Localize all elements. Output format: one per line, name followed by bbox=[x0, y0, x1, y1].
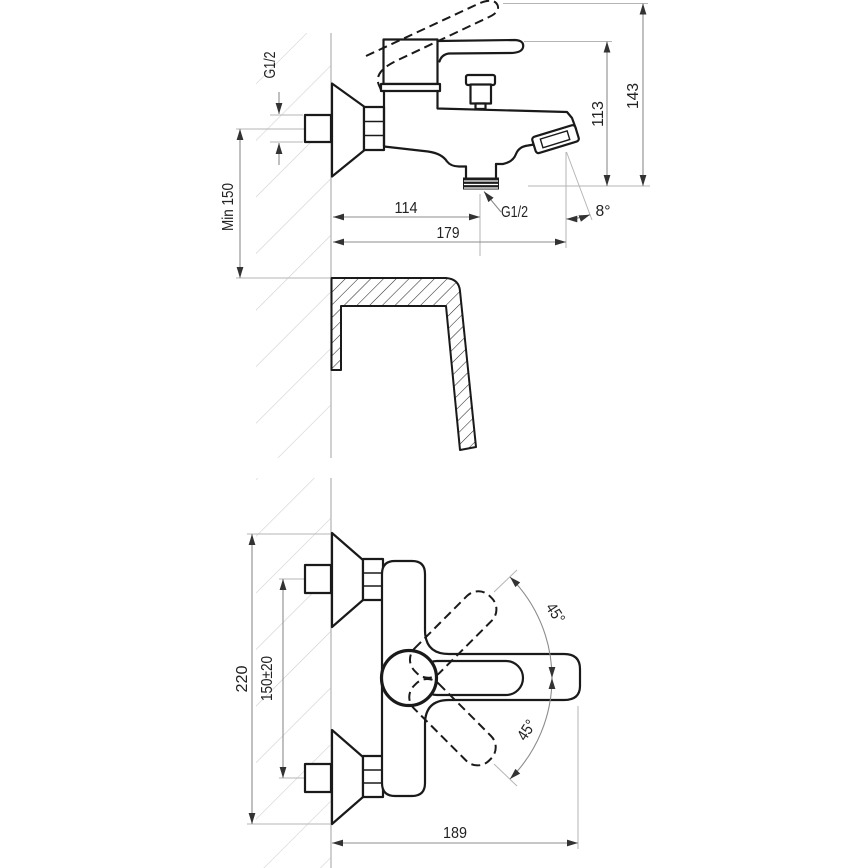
label-spout-height: 113 bbox=[590, 101, 607, 127]
supply-pipe-bottom bbox=[305, 764, 331, 792]
dimension-143: 143 bbox=[625, 4, 643, 187]
aerator bbox=[532, 124, 580, 153]
label-flange-span: 220 bbox=[234, 665, 251, 692]
diverter-knob bbox=[466, 75, 495, 109]
dimension-outlet-thread: G1/2 bbox=[484, 192, 528, 222]
handle-closed bbox=[381, 40, 523, 92]
hex-nut-side bbox=[364, 107, 384, 150]
handle-lever bbox=[438, 40, 523, 62]
label-wall-to-spout-end: 179 bbox=[437, 225, 460, 242]
mounting-escutcheon-lower bbox=[332, 730, 363, 824]
label-inlet-spacing: 150±20 bbox=[259, 656, 276, 701]
supply-pipe-side bbox=[305, 115, 331, 142]
mounting-escutcheon-side bbox=[332, 84, 364, 177]
wall-hatching-top bbox=[256, 33, 331, 458]
bathtub-rim-section bbox=[332, 278, 477, 450]
label-overall-height: 143 bbox=[625, 83, 642, 109]
handle-base-plate bbox=[381, 84, 440, 91]
dimension-189: 189 bbox=[332, 825, 578, 843]
label-min-mount-height: Min 150 bbox=[220, 183, 237, 231]
front-view: 220 150±20 189 45° 45° bbox=[234, 478, 580, 868]
dimension-114: 114 bbox=[333, 200, 480, 217]
label-overall-width: 189 bbox=[443, 825, 467, 842]
hex-nut-upper bbox=[363, 559, 383, 600]
body-underside-left bbox=[384, 91, 466, 167]
mounting-escutcheon-upper bbox=[332, 533, 363, 627]
dimension-min-150: Min 150 bbox=[220, 129, 240, 278]
faucet-dimensional-drawing: G1/2 Min 150 114 179 G1/2 8° 113 143 bbox=[0, 0, 868, 868]
faucet-body-side bbox=[384, 75, 580, 190]
label-inlet-thread: G1/2 bbox=[262, 51, 279, 78]
label-outlet-thread: G1/2 bbox=[501, 204, 528, 221]
shower-outlet-cylinder bbox=[466, 164, 496, 178]
side-view: G1/2 Min 150 114 179 G1/2 8° 113 143 bbox=[220, 1, 650, 458]
label-swing-lower: 45° bbox=[514, 717, 540, 744]
dimension-179: 179 bbox=[333, 225, 566, 242]
label-swing-upper: 45° bbox=[542, 600, 568, 627]
dimension-220: 220 bbox=[234, 534, 252, 824]
technical-drawing-page: G1/2 Min 150 114 179 G1/2 8° 113 143 bbox=[0, 0, 868, 868]
supply-pipe-top bbox=[305, 565, 331, 593]
label-spout-angle: 8° bbox=[596, 203, 611, 220]
body-underside-right bbox=[496, 144, 537, 164]
spout-top-edge bbox=[438, 91, 577, 129]
shower-outlet-thread bbox=[463, 178, 499, 190]
label-wall-to-outlet: 114 bbox=[395, 200, 418, 217]
hex-nut-lower bbox=[363, 756, 383, 797]
dimension-113: 113 bbox=[590, 42, 607, 187]
